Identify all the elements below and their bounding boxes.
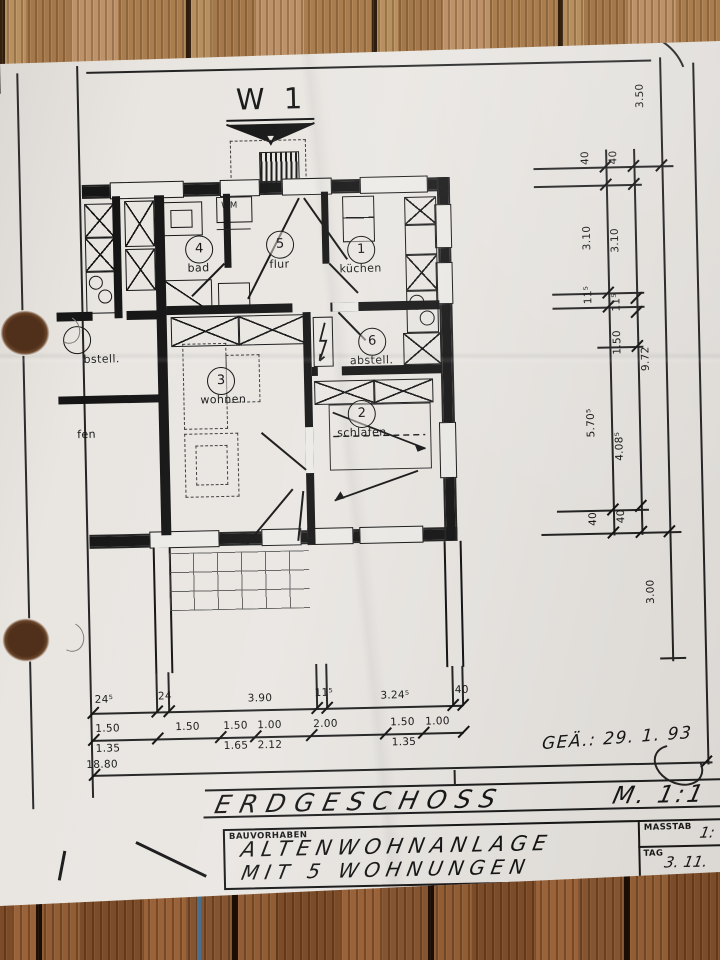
kitchen-counter (405, 224, 438, 255)
washbasin (218, 282, 251, 311)
room-number-flur: 5 (266, 230, 295, 259)
dim-label-rot: 40 (607, 135, 620, 179)
wall-segment (89, 536, 151, 547)
dimension-line (659, 57, 674, 661)
cabinet (124, 200, 155, 247)
dim-label-rot: 5.70⁵ (585, 401, 598, 445)
extension-line (553, 306, 645, 310)
date-label: TAG (643, 848, 663, 858)
dimension-line (91, 705, 463, 715)
dim-label-rot: 40 (587, 497, 600, 541)
dim-label-rot: 1.50 (611, 320, 624, 364)
wall-segment (328, 181, 364, 192)
dim-label-rot: 3.10 (581, 216, 594, 260)
dim-label: 2.00 (303, 717, 347, 730)
dim-label: 24⁵ (82, 693, 126, 706)
cabinet (85, 237, 116, 272)
furniture-outline (195, 445, 228, 486)
bed-arrows (329, 402, 435, 506)
storage-shelf (403, 332, 442, 365)
window (360, 175, 428, 193)
room-label-wohnen: wohnen (200, 393, 244, 407)
dim-label-rot: 11⁵ (610, 280, 623, 324)
window (110, 181, 184, 200)
dim-label-rot: 3.00 (644, 570, 657, 614)
dim-label: 1.00 (415, 715, 459, 728)
dim-label: 1.50 (165, 720, 209, 733)
dim-label: 40 (440, 683, 484, 696)
door-opening (332, 302, 358, 312)
wall-segment (126, 310, 157, 320)
dim-label: 24 (143, 690, 187, 703)
room-number-abstell: 6 (358, 327, 387, 356)
dim-label: 1.50 (85, 722, 129, 735)
hole-punch (2, 618, 50, 662)
window (439, 422, 457, 478)
dim-label-rot: 3.50 (633, 74, 646, 118)
dim-total-label: 18.80 (86, 758, 130, 771)
neighbor-room-label: bstell. (83, 352, 119, 366)
drawing-title: ERDGESCHOSS (212, 784, 508, 819)
wall-segment (445, 474, 455, 540)
wall-segment (312, 367, 318, 376)
scale-note: M. 1:1 (610, 779, 709, 809)
date-value: 3. 11. (663, 852, 709, 871)
wardrobe (373, 378, 434, 403)
wall-segment (180, 184, 224, 195)
extension-line (660, 657, 686, 659)
cabinet (84, 203, 115, 238)
window (359, 526, 423, 544)
dim-label-rot: 40 (615, 494, 628, 538)
extension-line (552, 292, 644, 296)
room-label-kueche: küchen (338, 261, 382, 275)
pillar (444, 541, 465, 667)
sheet-edge-stroke (58, 851, 66, 881)
dim-label: 1.35 (382, 736, 426, 749)
washing-machine-label: WM (221, 201, 238, 211)
wardrobe (238, 314, 308, 345)
toilet-bowl (170, 210, 192, 228)
photo-of-floorplan-page: W 1 (0, 0, 720, 960)
cabinet (125, 248, 156, 291)
dim-label-rot: 9.72 (639, 337, 652, 381)
terrace-grid (169, 550, 310, 611)
room-label-abstell: abstell. (349, 353, 393, 367)
wall-segment (58, 394, 159, 404)
lightning-bolt-icon (315, 321, 332, 365)
room-label-flur: flur (259, 257, 299, 271)
sheet-fold-line (16, 73, 34, 809)
wall-segment (215, 533, 263, 544)
dim-label-rot: 4.08⁵ (613, 424, 626, 468)
drawing-sheet: W 1 (0, 0, 720, 960)
dim-label-rot: 3.10 (609, 218, 622, 262)
dim-label-rot: 11⁵ (582, 273, 595, 317)
room-number-bad: 4 (185, 235, 214, 264)
sheet-edge-stroke (136, 841, 207, 877)
room-label-schlafen: schlafen (337, 425, 385, 439)
dim-label: 3.24⁵ (373, 689, 417, 702)
dim-label: 2.12 (248, 739, 292, 752)
window (149, 530, 219, 549)
hole-punch (0, 310, 50, 356)
kitchen-cabinet (404, 196, 437, 225)
dim-label: 1.00 (247, 719, 291, 732)
frame-top-line (86, 60, 651, 74)
small-dim-line (217, 228, 251, 230)
dim-label-rot: 40 (579, 136, 592, 180)
neighbor-room-label: fen (77, 428, 96, 441)
kitchen-cabinet (405, 254, 438, 291)
dimension-line (93, 761, 713, 776)
dim-label: 3.90 (238, 692, 282, 705)
dim-label: 1.35 (86, 742, 130, 755)
window (261, 528, 301, 546)
frame-right-line (692, 63, 709, 765)
room-label-bad: bad (178, 261, 218, 275)
title-strip-tick (454, 770, 456, 784)
door-swing-line (261, 432, 307, 470)
scale-label: MASSTAB (644, 822, 692, 833)
apartment-title: W 1 (236, 81, 308, 117)
shower (164, 279, 213, 314)
party-wall (154, 195, 171, 535)
room-number-kueche: 1 (347, 236, 376, 265)
extension-line (534, 184, 642, 188)
paper-sheet: W 1 (0, 0, 720, 960)
door-opening (305, 427, 314, 473)
dim-label: 11⁵ (302, 686, 346, 699)
